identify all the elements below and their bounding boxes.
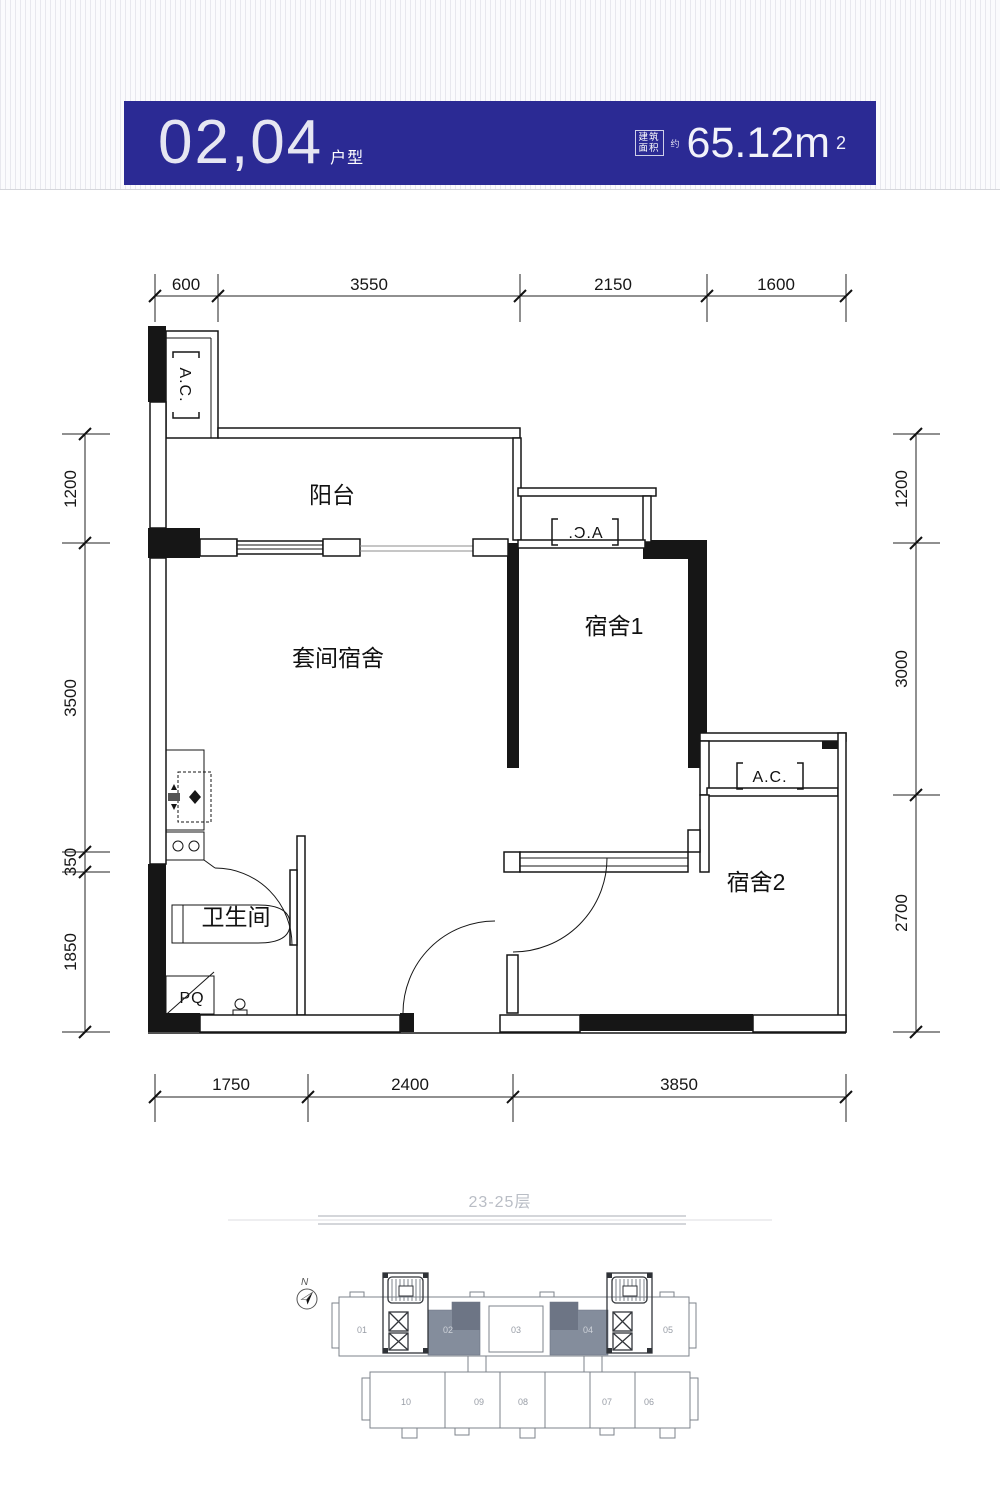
floor-range-label: 23-25层 bbox=[469, 1194, 532, 1211]
site-key-plan: N bbox=[297, 1273, 698, 1438]
dimension-right: 1200 3000 2700 bbox=[892, 428, 940, 1038]
north-compass-icon: N bbox=[297, 1277, 317, 1309]
floor-drain-icon bbox=[233, 999, 247, 1015]
site-unit-05: 05 bbox=[663, 1325, 673, 1335]
room-label-balcony: 阳台 bbox=[309, 482, 355, 508]
site-unit-06: 06 bbox=[644, 1397, 654, 1407]
dim-left-3500: 3500 bbox=[61, 679, 80, 717]
site-unit-01: 01 bbox=[357, 1325, 367, 1335]
site-tower-1 bbox=[383, 1273, 428, 1353]
site-unit-02-dark bbox=[452, 1302, 480, 1330]
pq-shaft: PQ bbox=[160, 972, 214, 1020]
dim-left-350: 350 bbox=[61, 848, 80, 876]
dim-top-2150: 2150 bbox=[594, 275, 632, 294]
north-label: N bbox=[301, 1277, 309, 1288]
floorplan-page: 02,04 户型 建筑 面积 约 65.12m 2 600 3550 2150 … bbox=[0, 0, 1000, 1488]
floor-range-divider: 23-25层 bbox=[228, 1194, 772, 1224]
dim-left-1200: 1200 bbox=[61, 470, 80, 508]
pq-label: PQ bbox=[179, 990, 204, 1007]
ac-label-balcony: A.C. bbox=[176, 367, 193, 402]
site-tower-2 bbox=[607, 1273, 652, 1353]
dim-bottom-3850: 3850 bbox=[660, 1075, 698, 1094]
site-unit-02: 02 bbox=[443, 1325, 453, 1335]
kitchen-sink bbox=[166, 750, 211, 830]
room-label-dorm1: 宿舍1 bbox=[585, 613, 644, 639]
dim-right-1200: 1200 bbox=[892, 470, 911, 508]
floor-plan-drawing: 600 3550 2150 1600 1750 2400 3850 1200 3… bbox=[0, 0, 1000, 1488]
dim-top-1600: 1600 bbox=[757, 275, 795, 294]
site-unit-10: 10 bbox=[401, 1397, 411, 1407]
dim-bottom-1750: 1750 bbox=[212, 1075, 250, 1094]
dim-left-1850: 1850 bbox=[61, 933, 80, 971]
dimension-left: 1200 3500 350 1850 bbox=[61, 428, 110, 1038]
site-unit-07: 07 bbox=[602, 1397, 612, 1407]
ac-label-dorm1: A.C. bbox=[567, 525, 602, 542]
dim-top-600: 600 bbox=[172, 275, 200, 294]
room-label-suite: 套间宿舍 bbox=[292, 645, 384, 671]
door-arcs bbox=[215, 858, 607, 1013]
dimension-top: 600 3550 2150 1600 bbox=[149, 274, 852, 322]
ac-unit-dorm2: A.C. bbox=[737, 763, 803, 789]
dim-bottom-2400: 2400 bbox=[391, 1075, 429, 1094]
stove bbox=[166, 832, 215, 868]
dim-right-2700: 2700 bbox=[892, 894, 911, 932]
balcony-window bbox=[200, 539, 508, 556]
ac-label-dorm2: A.C. bbox=[752, 769, 787, 786]
dimension-bottom: 1750 2400 3850 bbox=[149, 1074, 852, 1122]
site-unit-08: 08 bbox=[518, 1397, 528, 1407]
site-unit-04-dark bbox=[550, 1302, 578, 1330]
room-label-bathroom: 卫生间 bbox=[202, 904, 271, 930]
dim-top-3550: 3550 bbox=[350, 275, 388, 294]
dim-right-3000: 3000 bbox=[892, 650, 911, 688]
room-label-dorm2: 宿舍2 bbox=[727, 869, 786, 895]
site-unit-04: 04 bbox=[583, 1325, 593, 1335]
site-unit-09: 09 bbox=[474, 1397, 484, 1407]
site-unit-03: 03 bbox=[511, 1325, 521, 1335]
